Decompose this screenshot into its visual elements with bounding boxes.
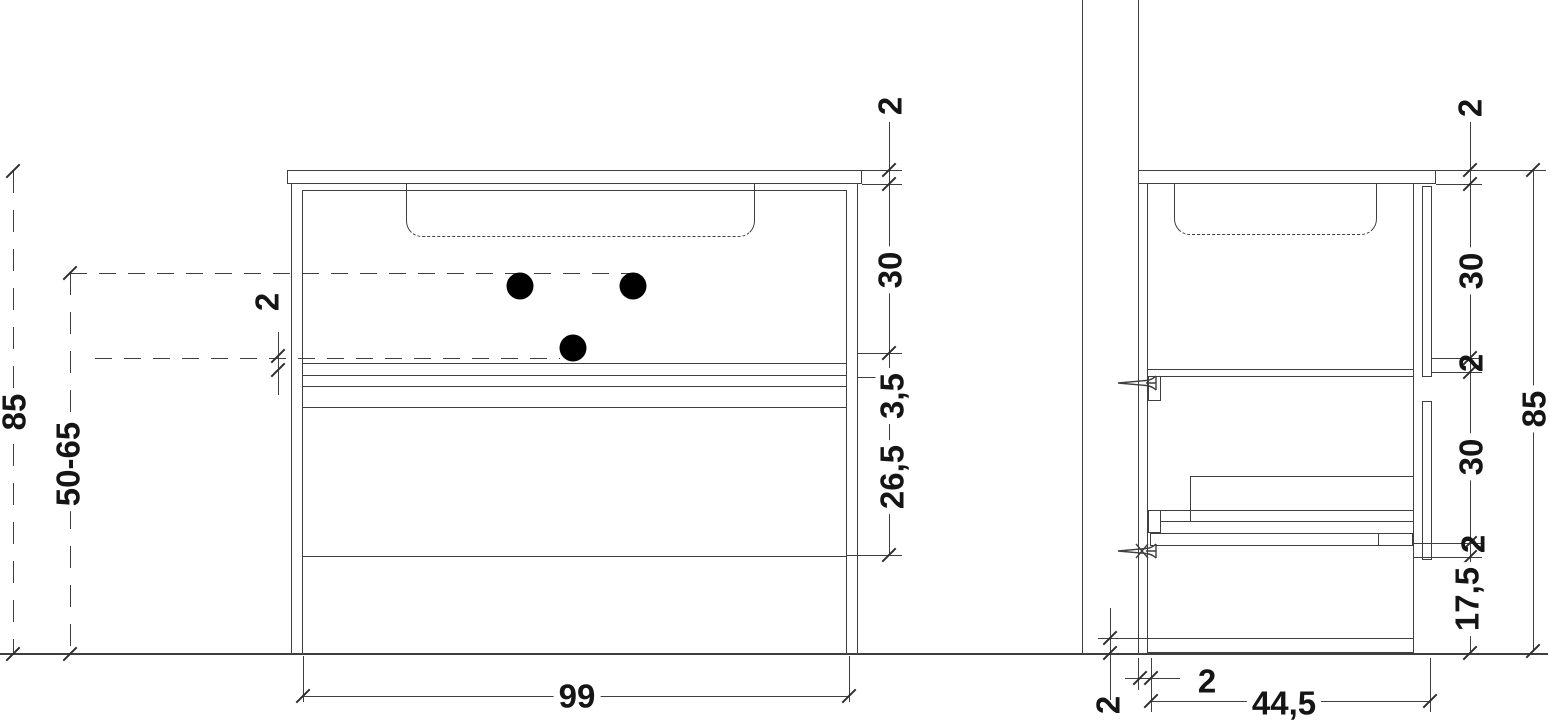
- hole-dot-right: [620, 273, 647, 300]
- side-worktop: [1138, 170, 1436, 184]
- dim-label-depth: 44,5: [1247, 687, 1321, 720]
- wall-left-line: [1082, 0, 1083, 653]
- dim-label-front-height: 85: [0, 389, 31, 436]
- front-drawer2-groove-line: [302, 407, 847, 408]
- ext-line: [1151, 658, 1152, 712]
- wall-gap-dim-line: [1125, 678, 1180, 679]
- stretcher-divider: [1378, 533, 1379, 546]
- ext-line: [862, 184, 902, 185]
- hidden-line-upper: [70, 273, 640, 274]
- front-worktop: [287, 170, 862, 184]
- front-right-panel-inner: [846, 190, 847, 654]
- dim-label-side-stretcher: 2: [1457, 535, 1490, 553]
- dim-label-front-drawer2: 26,5: [876, 440, 909, 514]
- sink-outline-front: [406, 183, 755, 237]
- dim-label-front-gap: 3,5: [876, 368, 909, 424]
- ext-line: [1430, 658, 1431, 712]
- front-shelf-bottom-line: [302, 375, 847, 376]
- hole-dot-center: [560, 335, 587, 362]
- dim-label-front-drawer1: 30: [874, 247, 907, 294]
- side-bottom-cleat: [1148, 510, 1161, 533]
- side-shelf: [1147, 369, 1414, 377]
- ext-line: [1098, 638, 1147, 639]
- dim-label-side-shelf: 2: [1455, 354, 1488, 372]
- side-upper-drawer-front: [1422, 186, 1432, 377]
- screw-icon: [1116, 541, 1170, 561]
- ext-line: [857, 353, 902, 354]
- front-left-panel-inner: [302, 190, 303, 654]
- dim-label-wall-gap: 2: [1198, 665, 1216, 698]
- front-right-panel-outer: [857, 184, 858, 654]
- side-back-panel: [1147, 184, 1148, 653]
- dim-label-drain-range: 50-65: [52, 417, 85, 511]
- ext-line: [862, 170, 902, 171]
- ground-line: [0, 653, 1548, 655]
- shelf-dim-line: [278, 332, 279, 395]
- dim-label-front-width: 99: [554, 680, 601, 713]
- front-drawer2-top-line: [302, 386, 847, 387]
- dim-label-side-worktop: 2: [1454, 99, 1487, 117]
- drawer-rail-bottom: [1159, 521, 1413, 522]
- hidden-line-lower: [95, 358, 560, 359]
- drawer-bottom-line: [1190, 476, 1413, 477]
- ext-line: [1436, 184, 1482, 185]
- dim-label-front-worktop: 2: [874, 97, 907, 115]
- ext-line: [1413, 557, 1482, 558]
- front-left-panel-outer: [291, 184, 292, 654]
- sink-outline-side: [1174, 183, 1377, 235]
- dim-label-front-shelf: 2: [251, 293, 284, 311]
- dim-label-side-front1: 30: [1455, 248, 1488, 295]
- technical-drawing-canvas: 2 30 3,5 26,5 85 50-65 2 99 2 30 2 30 2 …: [0, 0, 1550, 726]
- side-front-edge: [1413, 184, 1414, 653]
- front-shelf-top-line: [302, 363, 847, 364]
- dim-label-side-height: 85: [1518, 386, 1550, 433]
- ext-line: [847, 555, 902, 556]
- side-lower-drawer-front: [1422, 401, 1432, 560]
- side-bottom-panel: [1147, 638, 1414, 653]
- front-drawer2-bottom-line: [302, 556, 847, 557]
- drawer-rail-top: [1159, 510, 1413, 511]
- dim-label-side-plinth: 17,5: [1451, 562, 1484, 636]
- bottom-stretcher: [1150, 533, 1413, 546]
- dim-label-side-front2: 30: [1455, 434, 1488, 481]
- drawer-back-line: [1190, 476, 1191, 521]
- dim-label-side-bottom-panel: 2: [1092, 696, 1125, 714]
- ext-line: [1138, 658, 1139, 690]
- screw-icon: [1116, 373, 1170, 393]
- hole-dot-left: [507, 273, 534, 300]
